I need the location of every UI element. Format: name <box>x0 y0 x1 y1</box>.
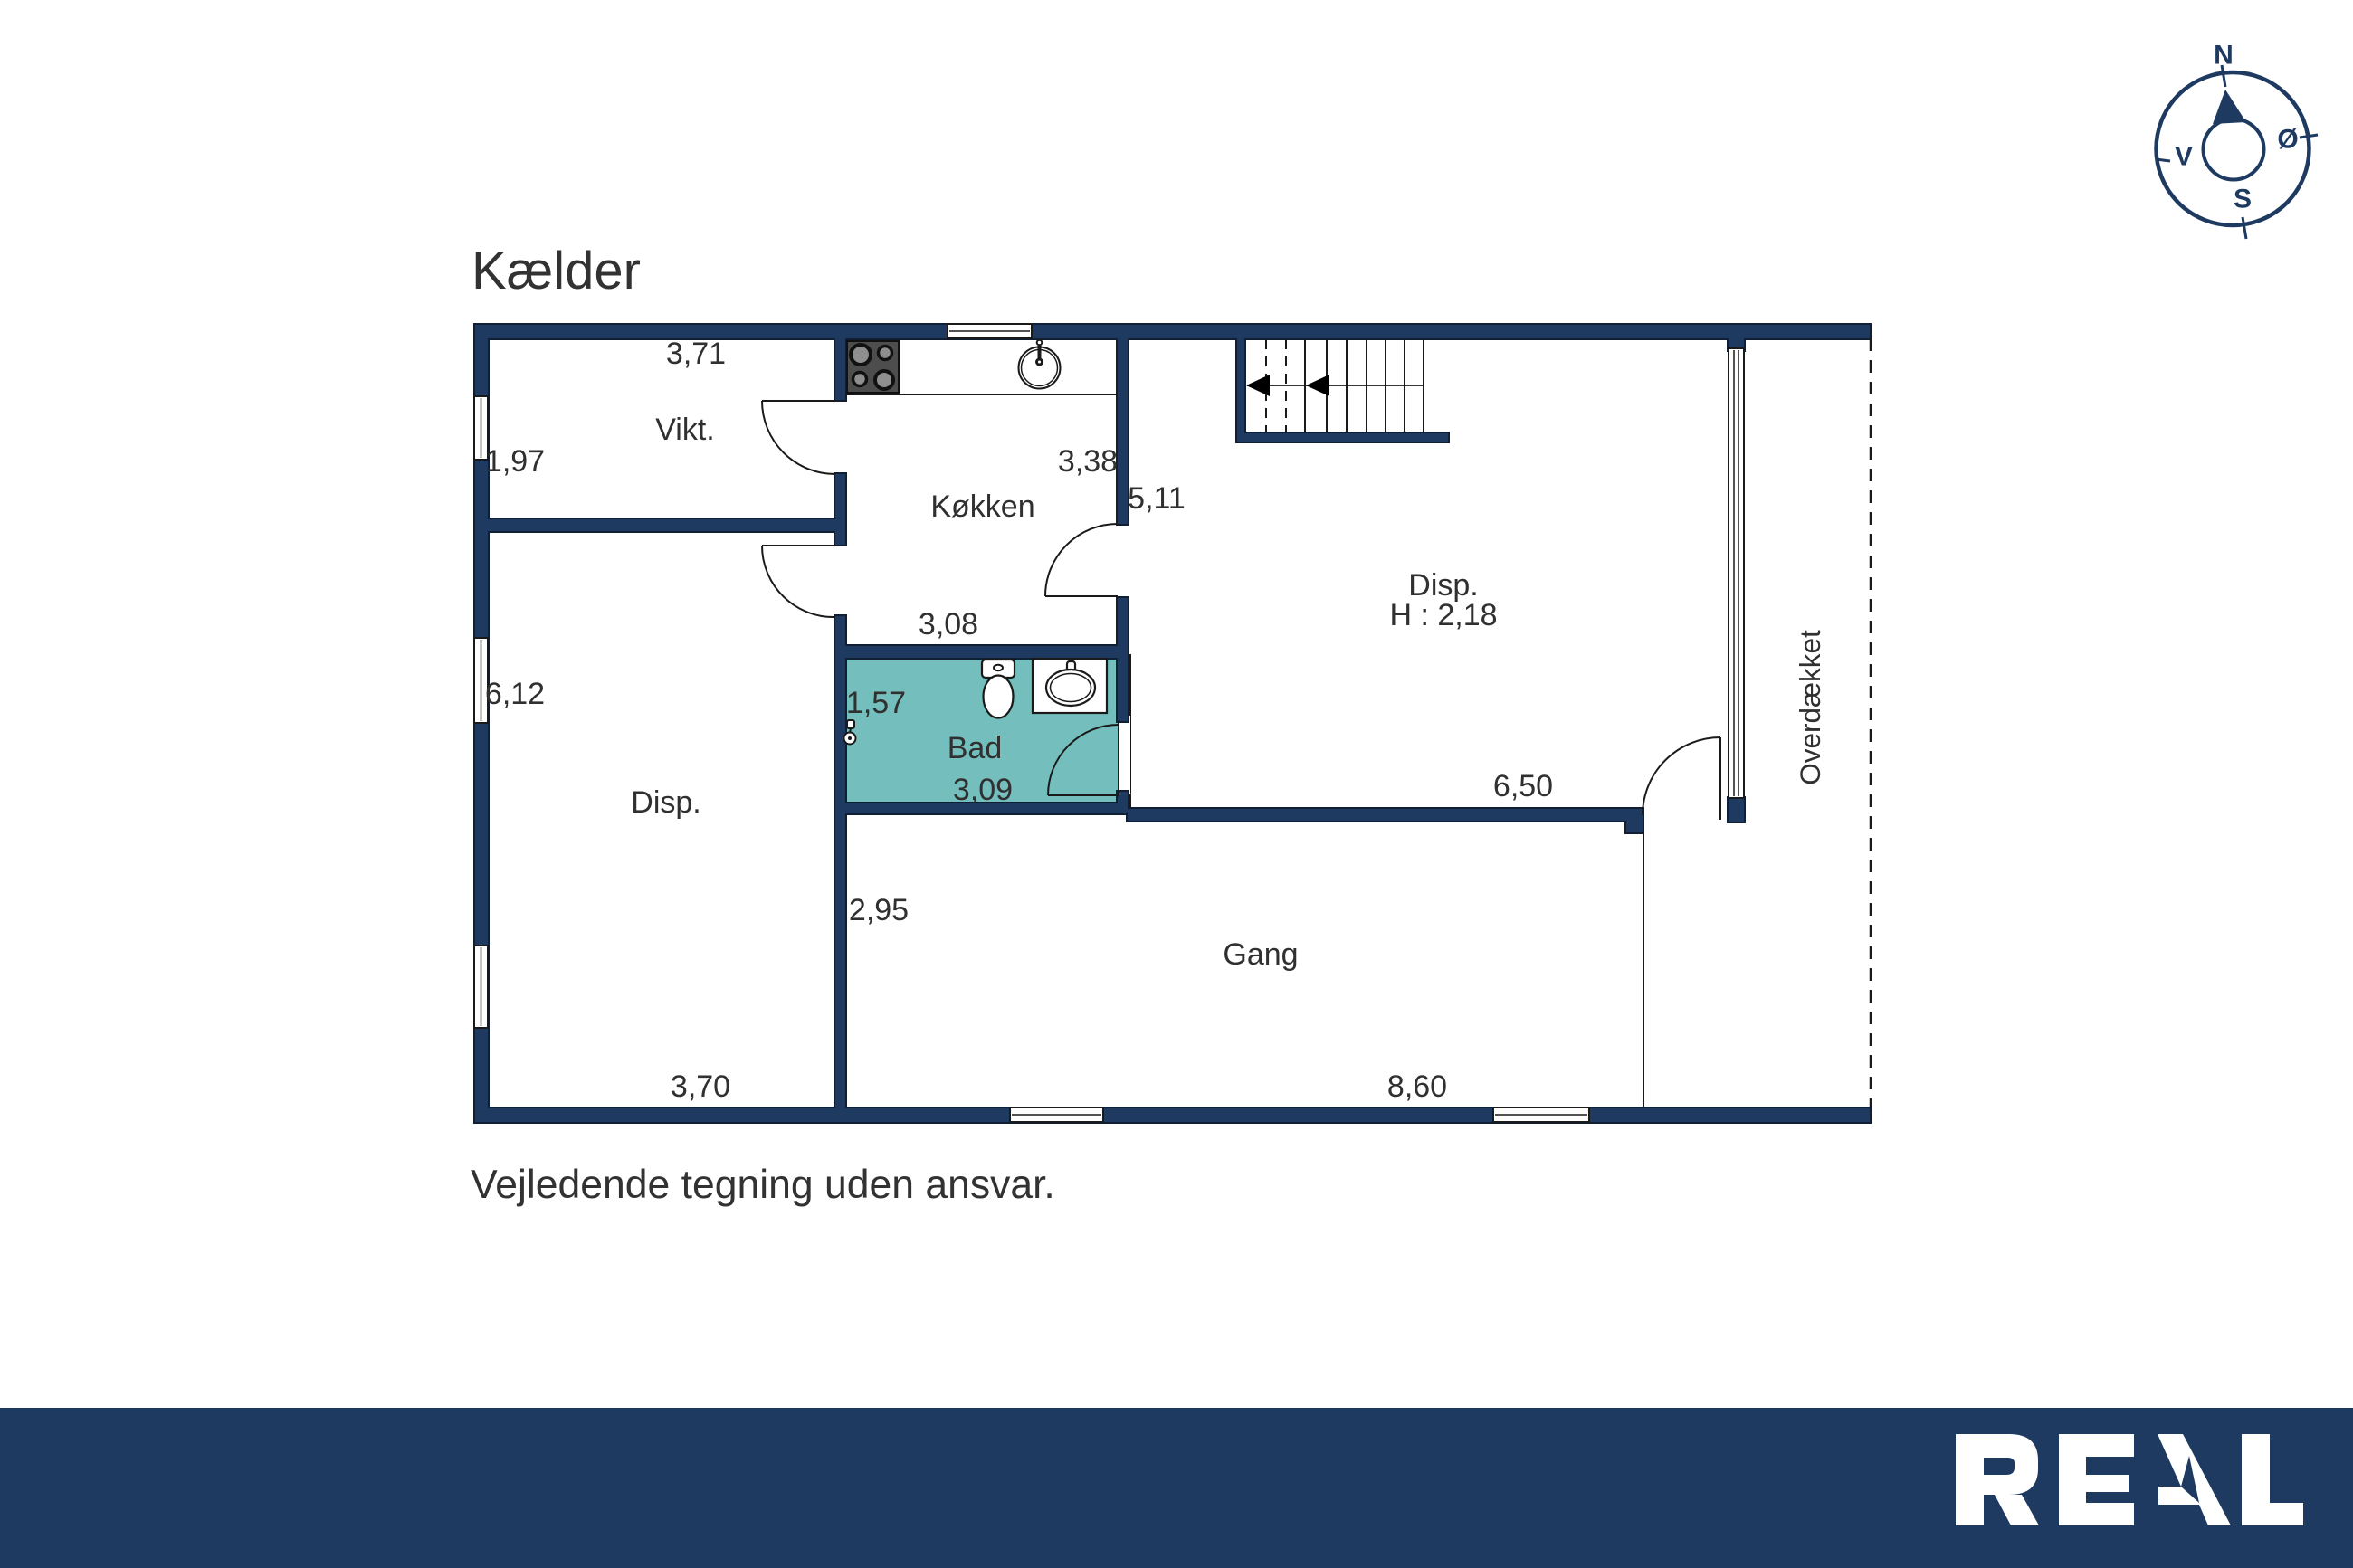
svg-text:Gang: Gang <box>1223 937 1298 972</box>
svg-text:6,12: 6,12 <box>485 677 545 711</box>
svg-text:S: S <box>2234 185 2252 214</box>
svg-text:3,70: 3,70 <box>671 1069 730 1104</box>
svg-text:Vejledende tegning uden ansvar: Vejledende tegning uden ansvar. <box>471 1163 1055 1207</box>
svg-text:Disp.: Disp. <box>631 785 700 820</box>
svg-text:6,50: 6,50 <box>1493 769 1553 803</box>
svg-text:5,11: 5,11 <box>1128 481 1186 516</box>
svg-text:3,09: 3,09 <box>953 773 1013 807</box>
svg-text:Kælder: Kælder <box>472 242 641 300</box>
svg-text:Bad: Bad <box>948 731 1003 765</box>
svg-text:Køkken: Køkken <box>930 489 1034 524</box>
svg-text:Ø: Ø <box>2277 125 2298 155</box>
svg-text:8,60: 8,60 <box>1387 1069 1447 1104</box>
svg-text:Vikt.: Vikt. <box>655 413 715 447</box>
svg-text:H : 2,18: H : 2,18 <box>1389 598 1497 632</box>
svg-text:2,95: 2,95 <box>849 893 909 927</box>
svg-text:V: V <box>2175 142 2193 172</box>
svg-text:N: N <box>2214 41 2234 71</box>
svg-text:1,97: 1,97 <box>485 444 545 479</box>
svg-text:1,57: 1,57 <box>846 686 906 720</box>
svg-text:Overdækket: Overdækket <box>1794 630 1826 785</box>
svg-text:3,71: 3,71 <box>666 337 726 371</box>
svg-text:3,08: 3,08 <box>919 607 978 641</box>
svg-text:3,38: 3,38 <box>1058 444 1118 479</box>
